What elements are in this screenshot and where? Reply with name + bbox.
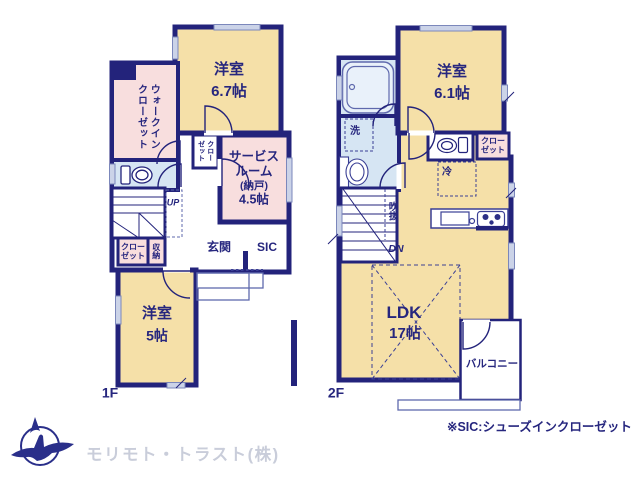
room-bedroom-6-7 bbox=[175, 27, 281, 133]
walk-in-closet-label: ウォークイン クローゼット bbox=[134, 84, 161, 150]
floorplan-page: 洋室 6.7帖 ウォークイン クローゼット クロー ゼット サービス ルーム (… bbox=[0, 0, 640, 480]
bedroom3-size-label: 6.1帖 bbox=[434, 85, 470, 103]
bedroom2-size-label: 5帖 bbox=[146, 328, 168, 345]
void-label: 吹抜 bbox=[385, 202, 398, 221]
toilet-icon-2f bbox=[438, 138, 468, 153]
storage-label: 収納 bbox=[150, 243, 161, 259]
stairs-up-label: UP bbox=[167, 198, 180, 209]
fridge-label: 冷 bbox=[442, 167, 452, 179]
wall-corner-wic bbox=[110, 61, 136, 80]
kitchen-sink bbox=[441, 212, 469, 225]
bedroom2-name-label: 洋室 bbox=[142, 305, 172, 323]
compass-needle-icon bbox=[30, 417, 40, 433]
closet-2f-label: クロー ゼット bbox=[481, 137, 505, 156]
floor-1f-label: 1F bbox=[102, 385, 118, 402]
entrance-label: 玄関 bbox=[207, 240, 231, 254]
kitchen-counter bbox=[431, 209, 508, 231]
bedroom1-name-label: 洋室 bbox=[214, 61, 244, 79]
closet-mid-label: クロー ゼット bbox=[195, 141, 215, 162]
toilet-icon-1f bbox=[121, 166, 152, 184]
service-room-size-label: 4.5帖 bbox=[239, 193, 269, 208]
washer-label: 洗 bbox=[350, 126, 360, 138]
bedroom3-name-label: 洋室 bbox=[437, 63, 467, 81]
company-logo-mark bbox=[11, 417, 74, 465]
service-room-label-1: サービス bbox=[229, 150, 279, 165]
floorplan-drawing bbox=[0, 0, 640, 480]
balcony-label: バルコニー bbox=[466, 358, 518, 370]
sic-note: ※SIC:シューズインクローゼット bbox=[447, 420, 632, 435]
wall-segment-east bbox=[291, 320, 297, 386]
stairs-dn-label: DN bbox=[388, 243, 403, 255]
bedroom1-size-label: 6.7帖 bbox=[211, 83, 247, 101]
porch-roof-below bbox=[398, 400, 520, 410]
company-name: モリモト・トラスト(株) bbox=[86, 446, 280, 465]
washbasin-icon bbox=[340, 157, 369, 187]
ldk-size-label: 17帖 bbox=[389, 325, 421, 343]
service-room-label-3: (納戸) bbox=[240, 180, 268, 192]
floor-2f-drawing bbox=[328, 26, 521, 411]
wall-sic-divider bbox=[243, 251, 248, 272]
sic-label: SIC bbox=[257, 240, 277, 254]
service-room-label-2: ルーム bbox=[235, 165, 272, 180]
ldk-name-label: LDK bbox=[387, 303, 422, 323]
entrance-porch-step1 bbox=[197, 273, 263, 288]
closet-sw-label: クロー ゼット bbox=[121, 243, 145, 262]
floor-2f-label: 2F bbox=[328, 385, 344, 402]
